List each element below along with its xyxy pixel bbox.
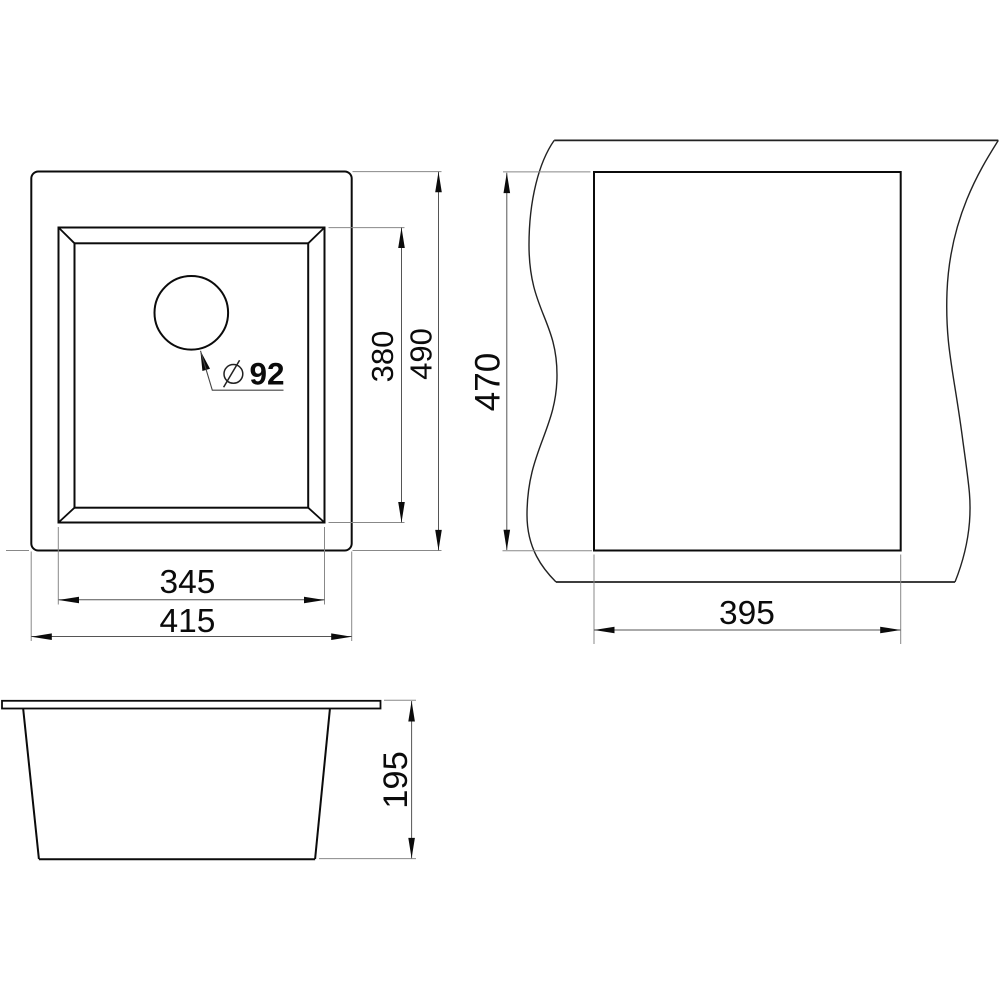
- svg-text:345: 345: [160, 564, 216, 601]
- svg-text:92: 92: [250, 356, 285, 392]
- svg-text:490: 490: [403, 328, 438, 380]
- svg-text:415: 415: [160, 603, 216, 640]
- svg-text:195: 195: [377, 751, 415, 809]
- svg-text:380: 380: [365, 331, 400, 383]
- svg-text:470: 470: [469, 353, 508, 411]
- svg-text:395: 395: [719, 595, 775, 632]
